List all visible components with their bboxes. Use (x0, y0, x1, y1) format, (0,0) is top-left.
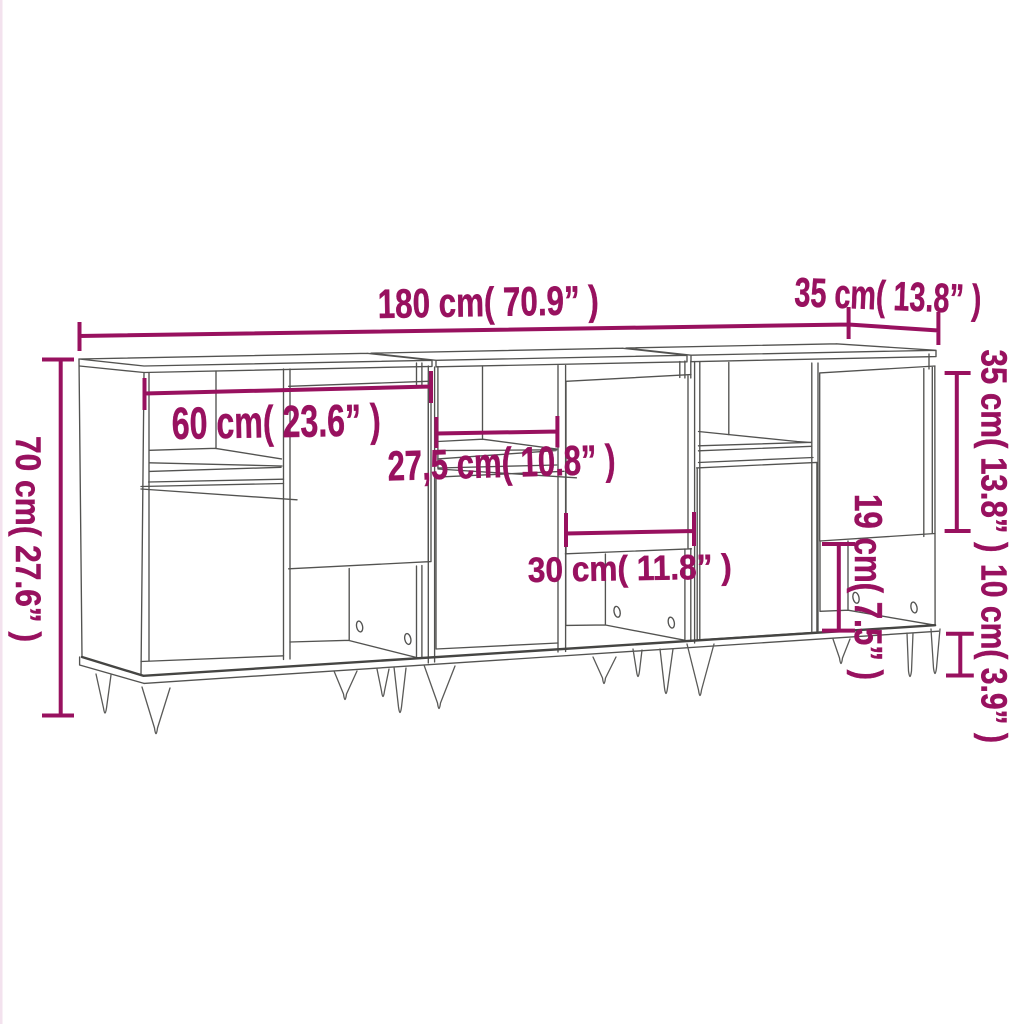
svg-text:30 cm( 11.8” ): 30 cm( 11.8” ) (527, 547, 732, 590)
svg-text:70 cm( 27.6” ): 70 cm( 27.6” ) (8, 436, 47, 642)
svg-text:35 cm( 13.8” ): 35 cm( 13.8” ) (974, 350, 1015, 553)
svg-text:180 cm( 70.9” ): 180 cm( 70.9” ) (377, 277, 599, 327)
svg-text:10 cm( 3.9” ): 10 cm( 3.9” ) (974, 564, 1015, 743)
svg-text:19 cm( 7.5” ): 19 cm( 7.5” ) (846, 494, 889, 680)
svg-text:35 cm( 13.8” ): 35 cm( 13.8” ) (794, 269, 983, 322)
svg-text:27,5 cm( 10.8” ): 27,5 cm( 10.8” ) (387, 436, 616, 490)
svg-text:60 cm( 23.6” ): 60 cm( 23.6” ) (171, 394, 381, 449)
